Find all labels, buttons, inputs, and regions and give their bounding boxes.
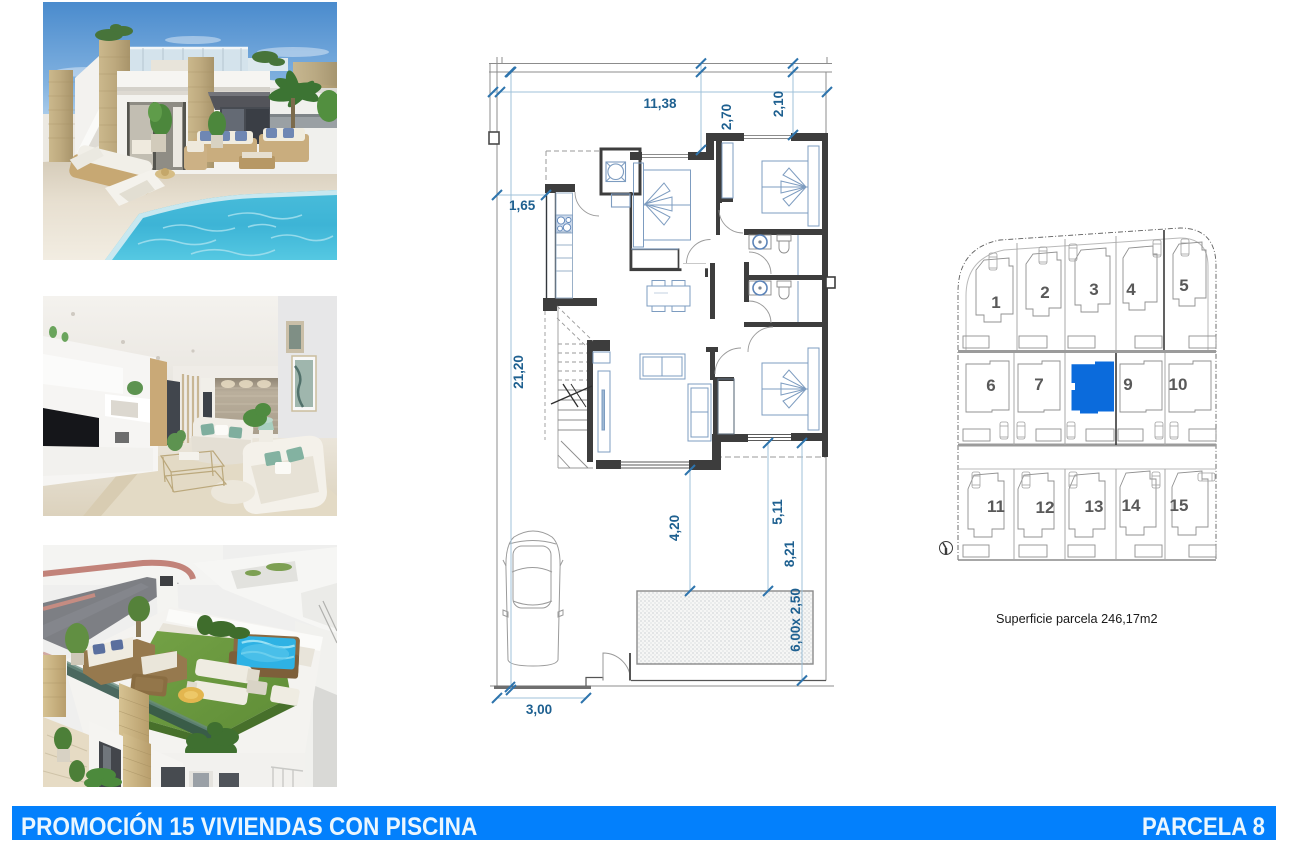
svg-text:5,11: 5,11 (770, 499, 785, 525)
svg-text:3,00: 3,00 (526, 702, 552, 717)
svg-text:9: 9 (1123, 375, 1132, 394)
svg-text:13: 13 (1085, 497, 1104, 516)
svg-text:6: 6 (986, 376, 995, 395)
svg-text:3: 3 (1089, 280, 1098, 299)
svg-text:4: 4 (1126, 280, 1136, 299)
svg-text:2: 2 (1040, 283, 1049, 302)
svg-text:14: 14 (1122, 496, 1141, 515)
svg-text:4,20: 4,20 (667, 515, 682, 541)
svg-text:11,38: 11,38 (643, 96, 677, 111)
svg-text:1: 1 (991, 293, 1000, 312)
svg-text:10: 10 (1169, 375, 1188, 394)
svg-text:12: 12 (1036, 498, 1055, 517)
svg-text:2,10: 2,10 (771, 91, 786, 117)
svg-text:1,65: 1,65 (509, 198, 536, 213)
svg-text:15: 15 (1170, 496, 1189, 515)
svg-text:2,70: 2,70 (719, 104, 734, 130)
svg-text:11: 11 (987, 497, 1005, 516)
svg-text:8,21: 8,21 (782, 540, 797, 567)
svg-text:21,20: 21,20 (511, 355, 526, 389)
svg-text:7: 7 (1034, 375, 1043, 394)
svg-text:6,00x 2,50: 6,00x 2,50 (788, 588, 803, 652)
svg-text:5: 5 (1179, 276, 1188, 295)
